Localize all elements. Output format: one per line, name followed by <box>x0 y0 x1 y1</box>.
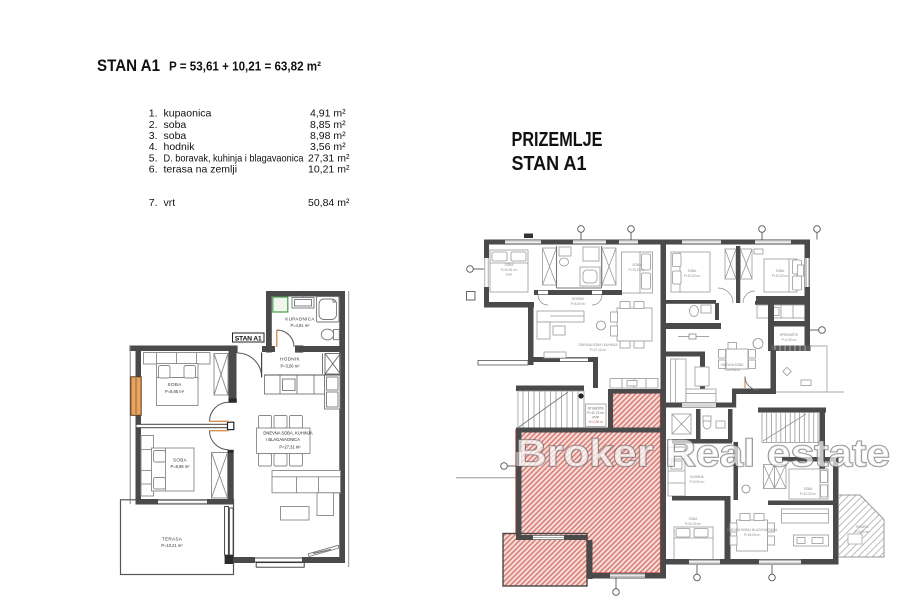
svg-text:SOBA: SOBA <box>505 263 515 267</box>
svg-text:P=10,51 m²: P=10,51 m² <box>501 268 518 272</box>
svg-text:P=4,91 m²: P=4,91 m² <box>291 323 311 328</box>
svg-text:SOBA: SOBA <box>173 458 188 463</box>
svg-text:kupaonica: kupaonica <box>164 108 212 120</box>
svg-text:SOBA: SOBA <box>632 263 642 267</box>
svg-text:I BLAGAVAONICA: I BLAGAVAONICA <box>266 437 300 442</box>
svg-text:P=8,98 m²: P=8,98 m² <box>171 464 191 469</box>
svg-text:SOBA: SOBA <box>776 269 786 273</box>
svg-text:SOBA: SOBA <box>168 382 183 387</box>
svg-text:TERASA: TERASA <box>162 537 183 542</box>
svg-text:P=3,56 m²: P=3,56 m² <box>281 364 301 369</box>
svg-text:P=10,20 m²: P=10,20 m² <box>772 274 789 278</box>
svg-text:hodnik: hodnik <box>164 141 196 153</box>
svg-text:6.: 6. <box>149 163 158 175</box>
svg-text:2.: 2. <box>149 119 158 131</box>
svg-text:P=10,21 m²: P=10,21 m² <box>161 543 183 548</box>
svg-text:KUPAONICA: KUPAONICA <box>285 317 315 322</box>
svg-text:P=10,20 m²: P=10,20 m² <box>629 268 646 272</box>
svg-text:SOBA: SOBA <box>688 269 698 273</box>
svg-text:Broker Real estate: Broker Real estate <box>516 433 890 475</box>
svg-text:DNEVNA SOBA, KUHINJA: DNEVNA SOBA, KUHINJA <box>263 431 312 436</box>
svg-text:4.: 4. <box>149 141 158 153</box>
svg-text:STUBIŠTE: STUBIŠTE <box>588 406 605 411</box>
svg-text:PVP: PVP <box>506 273 512 277</box>
svg-text:vrt: vrt <box>164 197 176 209</box>
svg-text:P=27,31 m²: P=27,31 m² <box>279 445 301 450</box>
svg-text:terasa na zemlji: terasa na zemlji <box>164 163 238 175</box>
svg-text:4,91 m²: 4,91 m² <box>310 108 346 120</box>
svg-text:SOBA: SOBA <box>804 487 814 491</box>
svg-text:SOBA: SOBA <box>689 517 699 521</box>
svg-text:P=11,74 m²: P=11,74 m² <box>587 411 605 415</box>
svg-text:soba: soba <box>164 119 187 131</box>
svg-text:DNEVNA SOBA I KUHINJA: DNEVNA SOBA I KUHINJA <box>579 343 619 347</box>
svg-text:KUHINJA: KUHINJA <box>690 475 705 479</box>
svg-text:P=9,00 m²: P=9,00 m² <box>855 530 870 534</box>
svg-text:P=27,12 m²: P=27,12 m² <box>590 348 607 352</box>
svg-text:I KUHINJA: I KUHINJA <box>724 368 740 372</box>
svg-text:P=8,85 m²: P=8,85 m² <box>165 389 185 394</box>
svg-text:P=5,00 m²: P=5,00 m² <box>690 480 705 484</box>
svg-text:P=6,00 m²: P=6,00 m² <box>571 302 586 306</box>
svg-text:1.: 1. <box>149 108 158 120</box>
svg-text:PVP: PVP <box>592 416 599 420</box>
svg-text:10,21 m²: 10,21 m² <box>308 163 350 175</box>
svg-text:P=10,20 m²: P=10,20 m² <box>684 274 701 278</box>
svg-text:PRIZEMLJE: PRIZEMLJE <box>512 129 603 151</box>
svg-text:8,85 m²: 8,85 m² <box>310 119 346 131</box>
svg-text:P=1,50 m²: P=1,50 m² <box>782 338 797 342</box>
svg-text:HODNIK: HODNIK <box>280 357 300 362</box>
svg-text:TERASA: TERASA <box>856 525 870 529</box>
svg-text:STAN A1: STAN A1 <box>512 153 587 175</box>
svg-text:P=10,20 m²: P=10,20 m² <box>685 522 702 526</box>
svg-text:STAN A1: STAN A1 <box>235 335 262 342</box>
svg-text:HODNIK: HODNIK <box>572 297 585 301</box>
svg-text:P=25,00 m²: P=25,00 m² <box>744 533 761 537</box>
svg-text:7.: 7. <box>149 197 158 209</box>
svg-text:DNEVNA SOBA: DNEVNA SOBA <box>721 363 745 367</box>
svg-text:P = 53,61 + 10,21 = 63,82 m²: P = 53,61 + 10,21 = 63,82 m² <box>169 59 322 74</box>
svg-text:DNEVNA SOBA I BLAGOVAONICA: DNEVNA SOBA I BLAGOVAONICA <box>727 528 778 532</box>
svg-text:3,56 m²: 3,56 m² <box>310 141 346 153</box>
svg-text:SPREMIŠTE: SPREMIŠTE <box>780 332 798 337</box>
svg-text:50,84 m²: 50,84 m² <box>308 197 350 209</box>
svg-text:STAN A1: STAN A1 <box>97 57 160 75</box>
svg-text:H=2,80 m: H=2,80 m <box>589 420 604 424</box>
svg-text:P=10,20 m²: P=10,20 m² <box>800 492 817 496</box>
